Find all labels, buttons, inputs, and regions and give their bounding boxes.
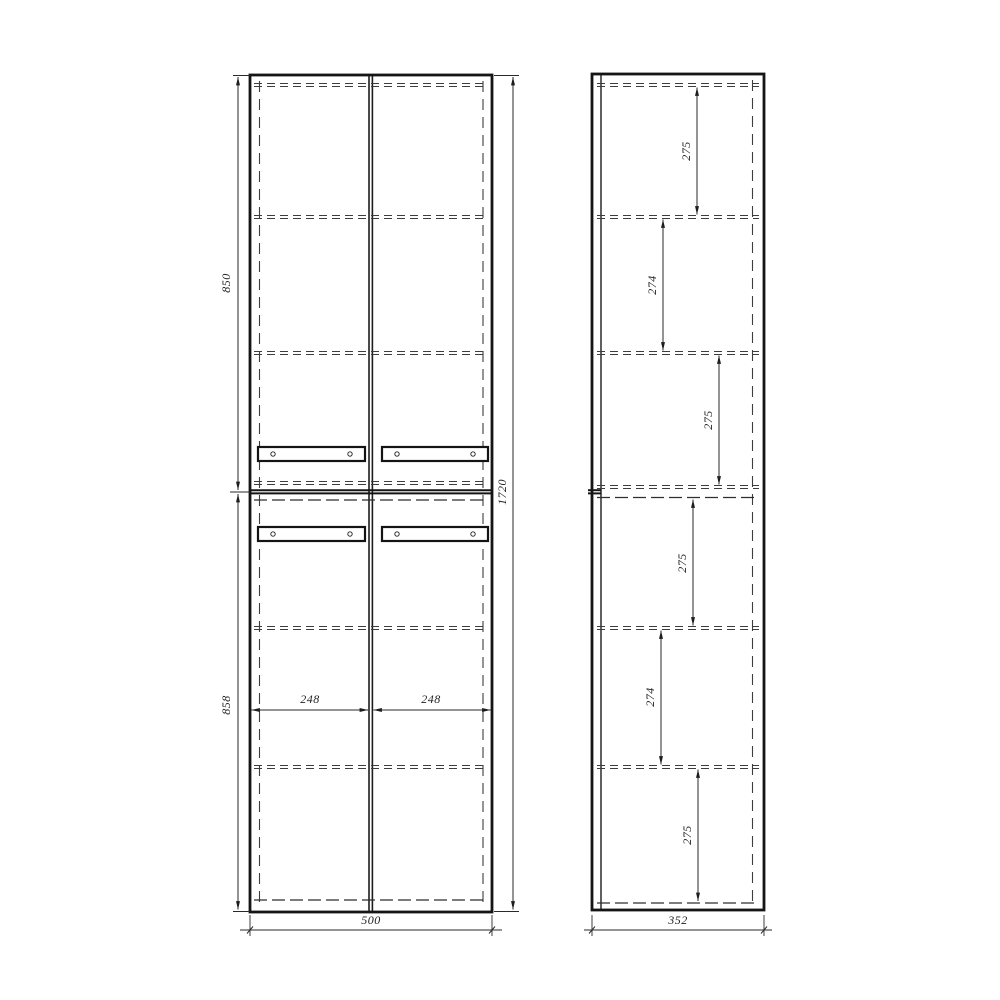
dim-label-shelf-2: 274 xyxy=(645,275,659,295)
front-view xyxy=(249,75,492,912)
dim-label-total-width: 500 xyxy=(361,913,381,927)
dim-label-total-depth: 352 xyxy=(667,913,688,927)
side-cabinet-outline xyxy=(592,74,764,910)
handle-screw xyxy=(271,532,275,536)
handle-screw xyxy=(471,452,475,456)
handle-screw xyxy=(395,532,399,536)
handle-screw xyxy=(395,452,399,456)
drawing-canvas: 850 858 1720 248 248 500 275 274 275 275… xyxy=(0,0,1000,1000)
handle-screw xyxy=(471,532,475,536)
handle-screw xyxy=(348,452,352,456)
dim-label-door-height-top: 850 xyxy=(219,273,233,293)
dim-label-door-width-right: 248 xyxy=(421,692,441,706)
dim-label-shelf-6: 275 xyxy=(680,825,694,845)
dim-label-total-height: 1720 xyxy=(495,479,509,505)
handle-screw xyxy=(348,532,352,536)
dim-label-door-height-bottom: 858 xyxy=(219,695,233,715)
dim-label-shelf-1: 275 xyxy=(679,141,693,161)
dim-label-shelf-5: 274 xyxy=(643,687,657,707)
technical-drawing: 850 858 1720 248 248 500 275 274 275 275… xyxy=(0,0,1000,1000)
dim-label-door-width-left: 248 xyxy=(300,692,320,706)
handle-screw xyxy=(271,452,275,456)
side-view xyxy=(588,74,764,910)
dim-label-shelf-4: 275 xyxy=(675,553,689,573)
dim-label-shelf-3: 275 xyxy=(701,410,715,430)
